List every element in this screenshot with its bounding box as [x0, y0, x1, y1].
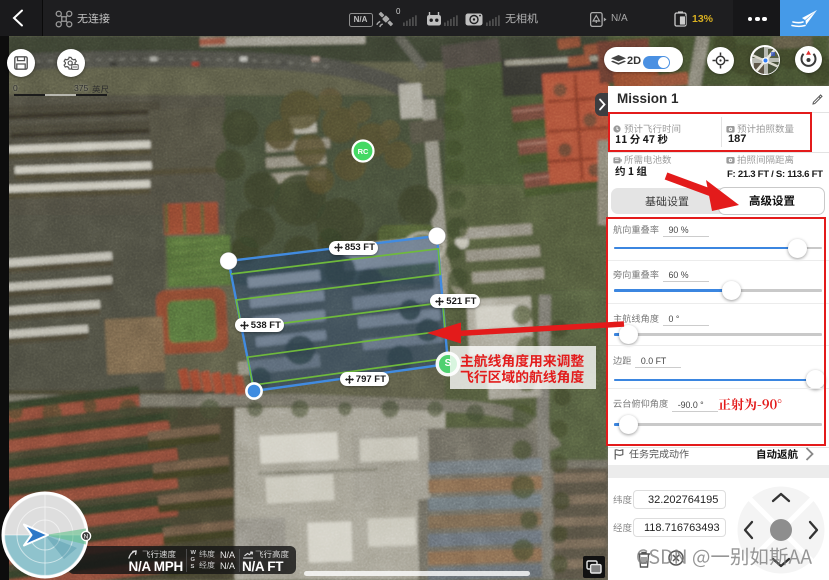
svg-text:N: N [84, 534, 89, 541]
